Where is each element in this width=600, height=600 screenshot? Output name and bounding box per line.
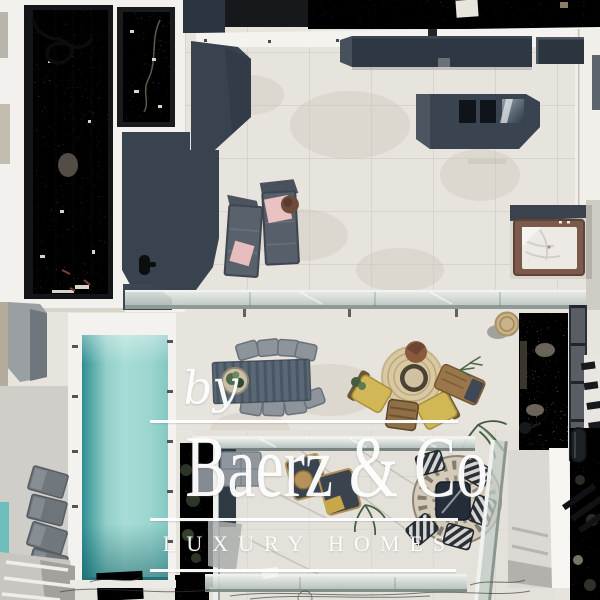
- corridor-lower-right: [508, 448, 576, 588]
- pool-bottom-rim: [70, 580, 176, 588]
- swimming-pool: [68, 313, 176, 585]
- stone-wall: [519, 310, 568, 456]
- shadow-wall-top-bar: [183, 0, 225, 33]
- shadow-wall-lower: [122, 132, 219, 290]
- skylight-box: [416, 94, 540, 149]
- sun-lounger-right: [260, 179, 302, 265]
- gravel-strip-top: [308, 0, 600, 29]
- roof-box-short: [536, 37, 584, 64]
- villa-scene: [0, 0, 600, 600]
- aerial-villa-photo: by Baerz & Co LUXURY HOMES: [0, 0, 600, 600]
- spa-water-edge: [0, 502, 9, 558]
- jacuzzi: [510, 205, 592, 279]
- glass-roof-edge: [193, 436, 475, 451]
- roof-patch-large: [24, 5, 113, 299]
- roof-patch-small: [117, 7, 175, 127]
